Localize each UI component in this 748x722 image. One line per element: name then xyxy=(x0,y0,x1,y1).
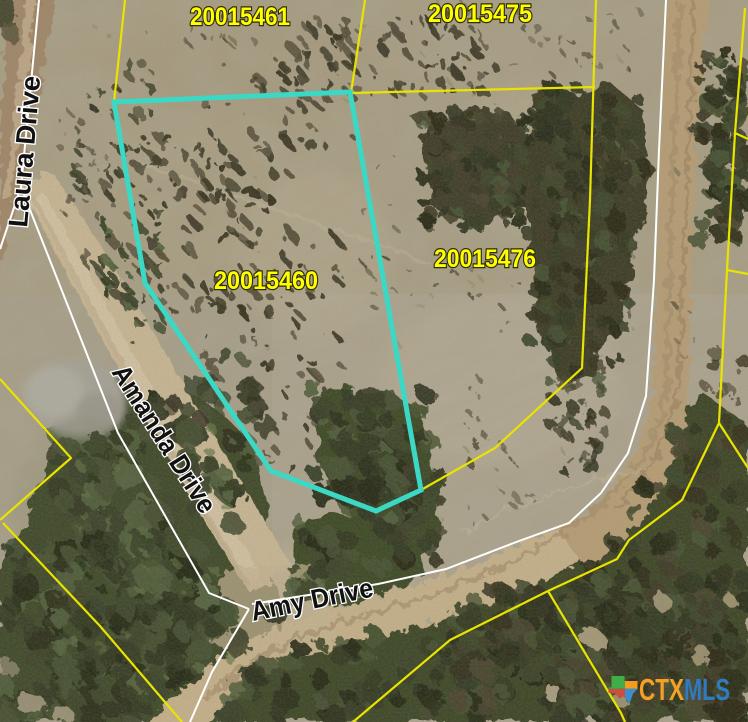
svg-text:CTX: CTX xyxy=(639,672,684,707)
svg-text:20015460: 20015460 xyxy=(214,267,318,295)
svg-text:MLS: MLS xyxy=(684,672,730,707)
svg-text:20015476: 20015476 xyxy=(434,245,536,273)
svg-text:20015475: 20015475 xyxy=(428,0,532,28)
svg-text:20015461: 20015461 xyxy=(190,3,290,31)
